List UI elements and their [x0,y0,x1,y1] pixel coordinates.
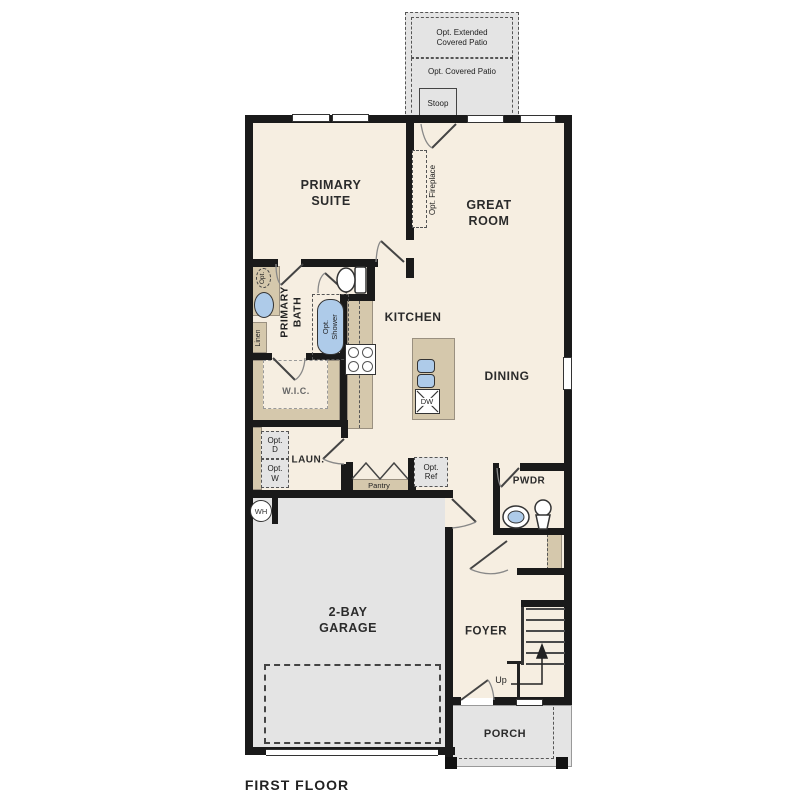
opt-dryer-box: Opt. D [261,431,289,459]
floor-plan: Opt. Extended Covered Patio Opt. Covered… [0,0,810,810]
wall-garage-right [445,527,453,705]
wall-pwdr-top-b [520,463,565,471]
wall-wic-top-a [245,353,272,360]
window-suite-2 [332,114,369,122]
stair-rail-v [517,661,520,703]
burner-4 [362,361,373,372]
room-label-pwdr: PWDR [513,475,546,488]
wall-pwdr-bottom [493,528,572,535]
porch-edge-dashed-h [459,758,554,759]
stair-tread [526,619,565,621]
garage-parking-outline [264,664,441,744]
stoop-label: Stoop [428,100,449,109]
room-label-kitchen: KITCHEN [385,310,442,326]
stair-tread [526,641,565,643]
opt-second-sink-label: Opt. [259,272,267,284]
opt-fireplace-label: Opt. Fireplace [428,165,438,215]
island-sink-bowl-1 [417,359,435,373]
wall-left [245,115,253,755]
stair-tread [526,630,565,632]
opt-extended-covered-patio: Opt. Extended Covered Patio [411,17,513,58]
dishwasher-label: DW [420,398,435,406]
wic-floor [263,360,328,409]
wall-wh-nook [272,490,278,524]
room-label-wic: W.I.C. [282,386,310,398]
burner-2 [362,347,373,358]
stairs-up-label: Up [495,676,507,686]
room-label-dining: DINING [485,369,530,385]
burner-3 [348,361,359,372]
opt-shower-label: Opt. Shower [321,314,339,339]
page-title: FIRST FLOOR [245,776,349,794]
opt-refrigerator-box: Opt. Ref [414,457,448,487]
wall-stair-top [521,600,565,607]
wall-kitchen-hall [406,258,414,278]
island-sink-bowl-2 [417,374,435,388]
opt-washer-box: Opt. W [261,459,289,488]
stair-tread [526,608,565,610]
window-greatroom-2 [520,115,556,123]
wall-stair-left [521,607,524,665]
coat-closet-shelf [547,534,562,570]
porch-edge-dashed-v [553,707,554,759]
porch-post-left [445,757,457,769]
room-label-primary-bath: PRIMARY BATH [278,286,303,338]
room-label-laundry: LAUN. [291,454,324,467]
window-greatroom-1 [467,115,504,123]
wall-bath-top-a [245,259,278,267]
garage-door [266,749,438,756]
wall-closet-bottom [517,568,565,575]
wall-laundry-right-a [341,420,348,438]
window-foyer [516,699,543,706]
wall-porch-left [445,705,453,760]
wall-right [564,115,572,705]
wall-pantry-left [346,462,353,494]
pantry-label: Pantry [368,482,390,490]
burner-1 [348,347,359,358]
linen-label: Linen [255,329,263,346]
stair-tread [526,652,565,654]
wall-pwdr-left [493,468,500,535]
room-label-great-room: GREAT ROOM [466,197,511,230]
wall-wic-laundry [245,420,347,427]
wall-wc-bottom [347,294,375,301]
room-label-porch: PORCH [484,727,526,741]
bath-sink [254,292,274,318]
porch-post-right [556,757,568,769]
room-label-garage: 2-BAY GARAGE [319,604,377,637]
window-dining [563,357,572,390]
room-label-foyer: FOYER [465,625,507,640]
opt-fireplace-box [412,150,427,228]
window-suite-1 [292,114,330,122]
water-heater-label: WH [255,507,268,516]
room-label-primary-suite: PRIMARY SUITE [301,177,362,210]
stair-tread [526,663,565,665]
water-heater: WH [250,500,272,522]
opt-covered-patio-label: Opt. Covered Patio [428,67,496,76]
